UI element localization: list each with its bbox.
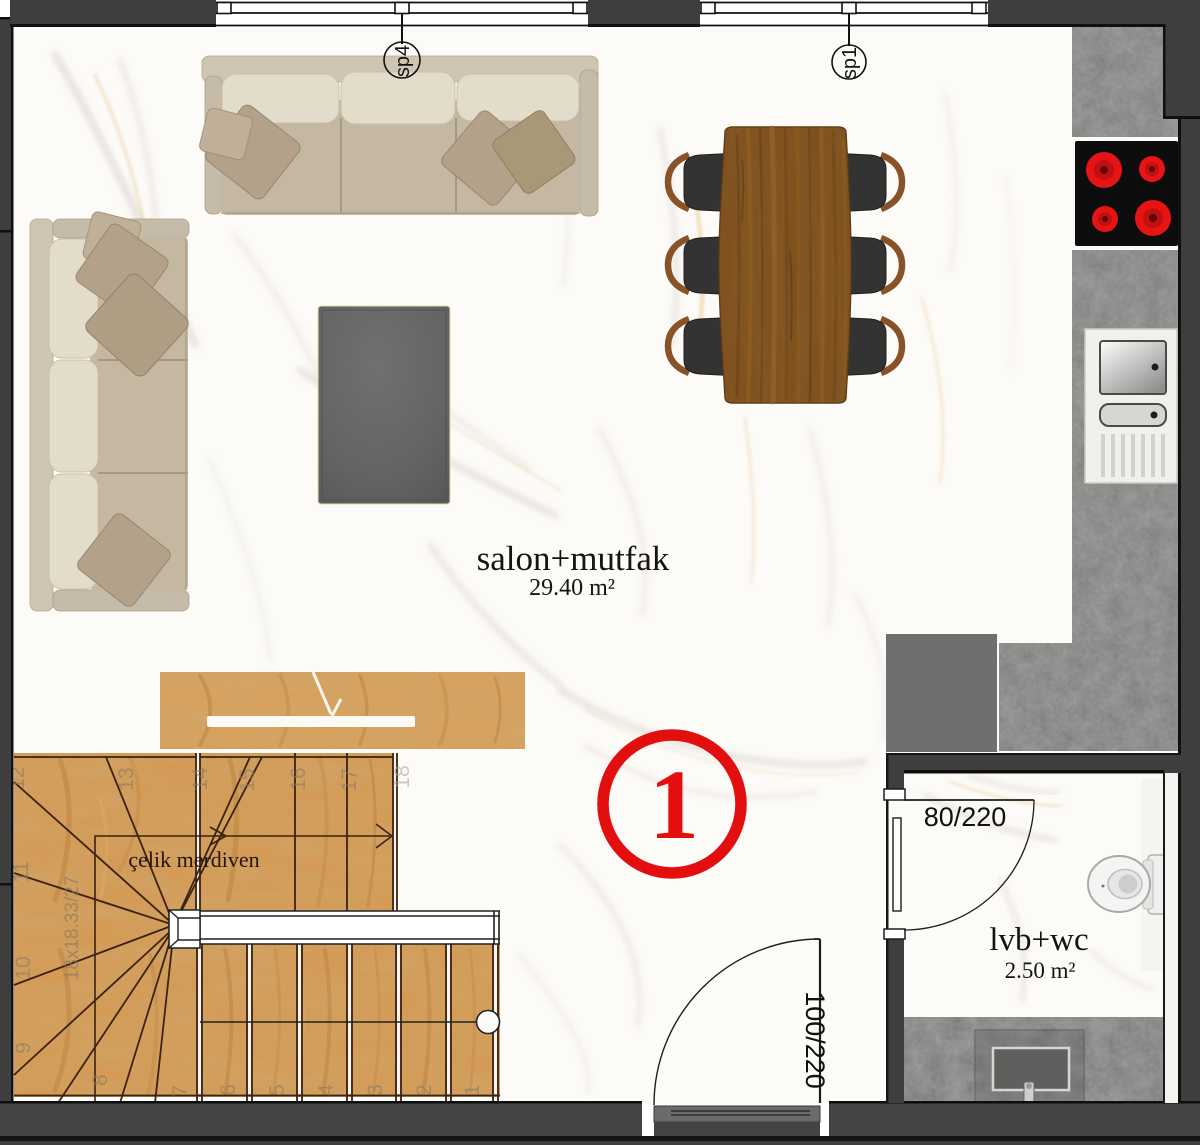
svg-text:18x18.33/27: 18x18.33/27 (62, 876, 83, 981)
svg-text:çelik merdiven: çelik merdiven (128, 847, 259, 872)
svg-text:14: 14 (189, 767, 212, 791)
svg-text:5: 5 (266, 1084, 289, 1096)
svg-text:sp4: sp4 (392, 45, 414, 77)
svg-text:10: 10 (12, 956, 35, 979)
svg-text:80/220: 80/220 (924, 802, 1007, 832)
svg-text:100/220: 100/220 (800, 991, 830, 1089)
svg-text:2: 2 (413, 1084, 436, 1096)
svg-text:salon+mutfak: salon+mutfak (477, 539, 670, 578)
svg-text:sp1: sp1 (839, 47, 861, 79)
svg-text:16: 16 (287, 767, 310, 790)
svg-text:13: 13 (115, 767, 138, 790)
svg-text:3: 3 (364, 1084, 387, 1096)
svg-text:lvb+wc: lvb+wc (989, 922, 1088, 958)
svg-text:1: 1 (649, 749, 699, 860)
svg-text:29.40 m²: 29.40 m² (529, 575, 615, 601)
svg-text:18: 18 (391, 765, 414, 788)
svg-text:9: 9 (12, 1042, 35, 1054)
svg-text:2.50 m²: 2.50 m² (1005, 958, 1076, 983)
svg-text:17: 17 (338, 768, 361, 791)
svg-text:6: 6 (217, 1084, 240, 1096)
svg-text:1: 1 (461, 1084, 484, 1096)
svg-text:15: 15 (236, 768, 259, 791)
svg-text:8: 8 (89, 1074, 112, 1086)
svg-text:7: 7 (169, 1085, 192, 1097)
svg-text:4: 4 (315, 1084, 338, 1096)
